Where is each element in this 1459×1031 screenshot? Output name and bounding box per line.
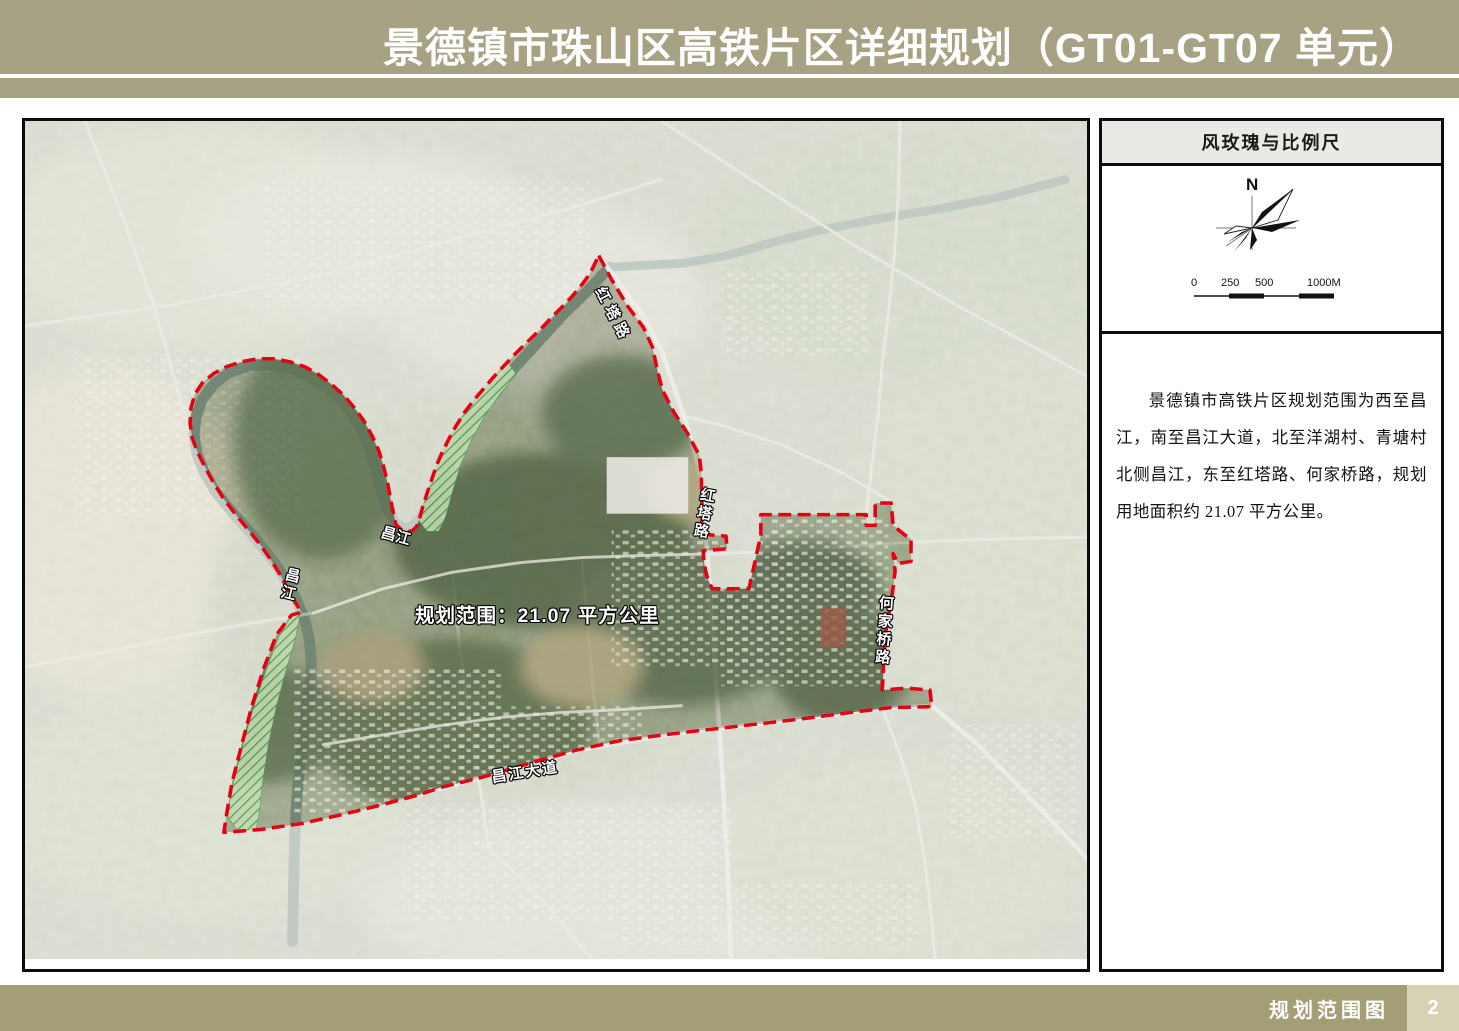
page-number: 2 <box>1407 985 1459 1031</box>
compass-north-label: N <box>1246 175 1258 194</box>
scale-tick-250: 250 <box>1221 277 1239 289</box>
wind-rose-section: N 0 250 500 1000M <box>1102 166 1441 334</box>
description-section: 景德镇市高铁片区规划范围为西至昌江，南至昌江大道，北至洋湖村、青塘村北侧昌江，东… <box>1102 334 1441 530</box>
header-band: 景德镇市珠山区高铁片区详细规划（GT01-GT07 单元） <box>0 0 1459 74</box>
scale-tick-500: 500 <box>1255 277 1273 289</box>
scale-tick-0: 0 <box>1191 277 1197 289</box>
scale-tick-1000: 1000M <box>1307 277 1341 289</box>
satellite-map <box>25 121 1087 959</box>
footer-caption: 规划范围图 <box>1269 985 1389 1031</box>
legend-panel-title: 风玫瑰与比例尺 <box>1102 121 1441 166</box>
map-frame: 红塔路 红塔路 昌江 昌江 何家桥路 昌江大道 规划范围：21.07 平方公里 <box>22 118 1090 972</box>
footer-bar: 规划范围图 2 <box>0 985 1459 1031</box>
scale-bar: 0 250 500 1000M <box>1188 274 1348 308</box>
wind-rose: N <box>1194 174 1324 266</box>
header-sub-band <box>0 78 1459 98</box>
legend-panel: 风玫瑰与比例尺 N 0 250 500 1000M <box>1099 118 1444 972</box>
page-title: 景德镇市珠山区高铁片区详细规划（GT01-GT07 单元） <box>383 14 1421 74</box>
planning-description: 景德镇市高铁片区规划范围为西至昌江，南至昌江大道，北至洋湖村、青塘村北侧昌江，东… <box>1116 382 1427 530</box>
